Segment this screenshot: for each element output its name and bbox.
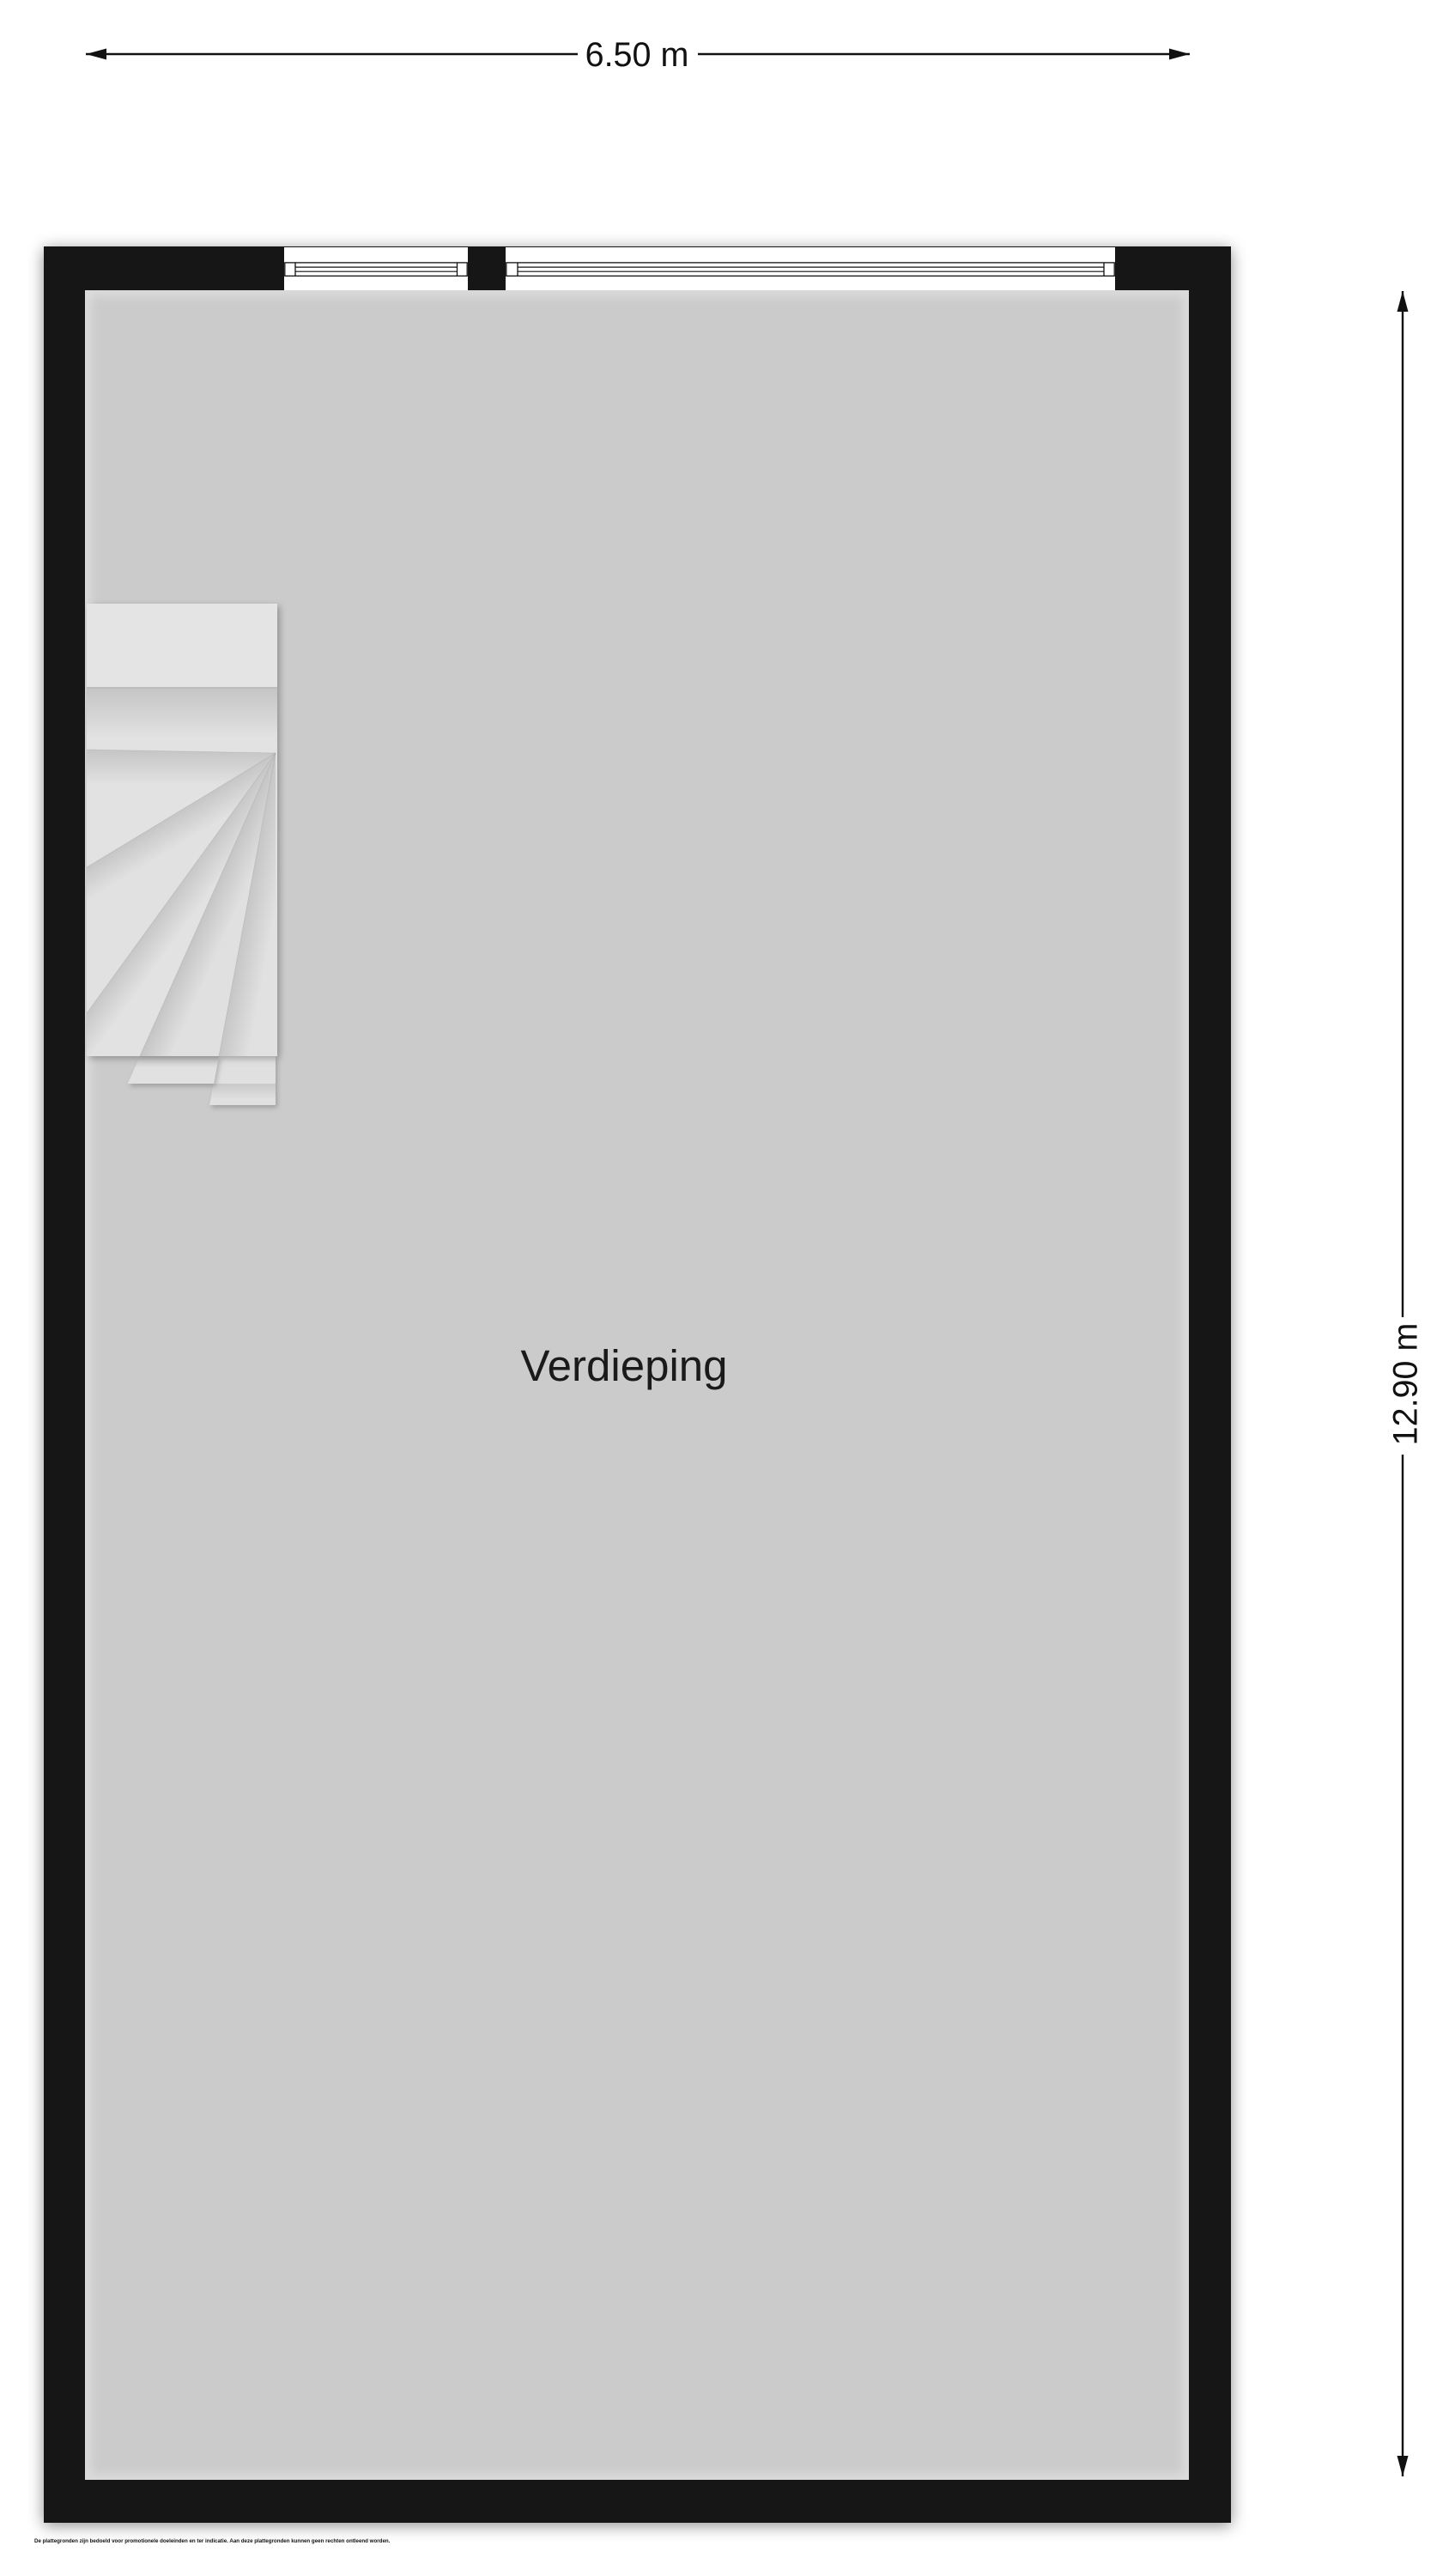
svg-text:Verdieping: Verdieping: [520, 1341, 727, 1390]
svg-text:12.90 m: 12.90 m: [1387, 1323, 1425, 1446]
svg-text:De plattegronden zijn bedoeld: De plattegronden zijn bedoeld voor promo…: [34, 2538, 391, 2544]
svg-text:6.50 m: 6.50 m: [585, 36, 689, 74]
